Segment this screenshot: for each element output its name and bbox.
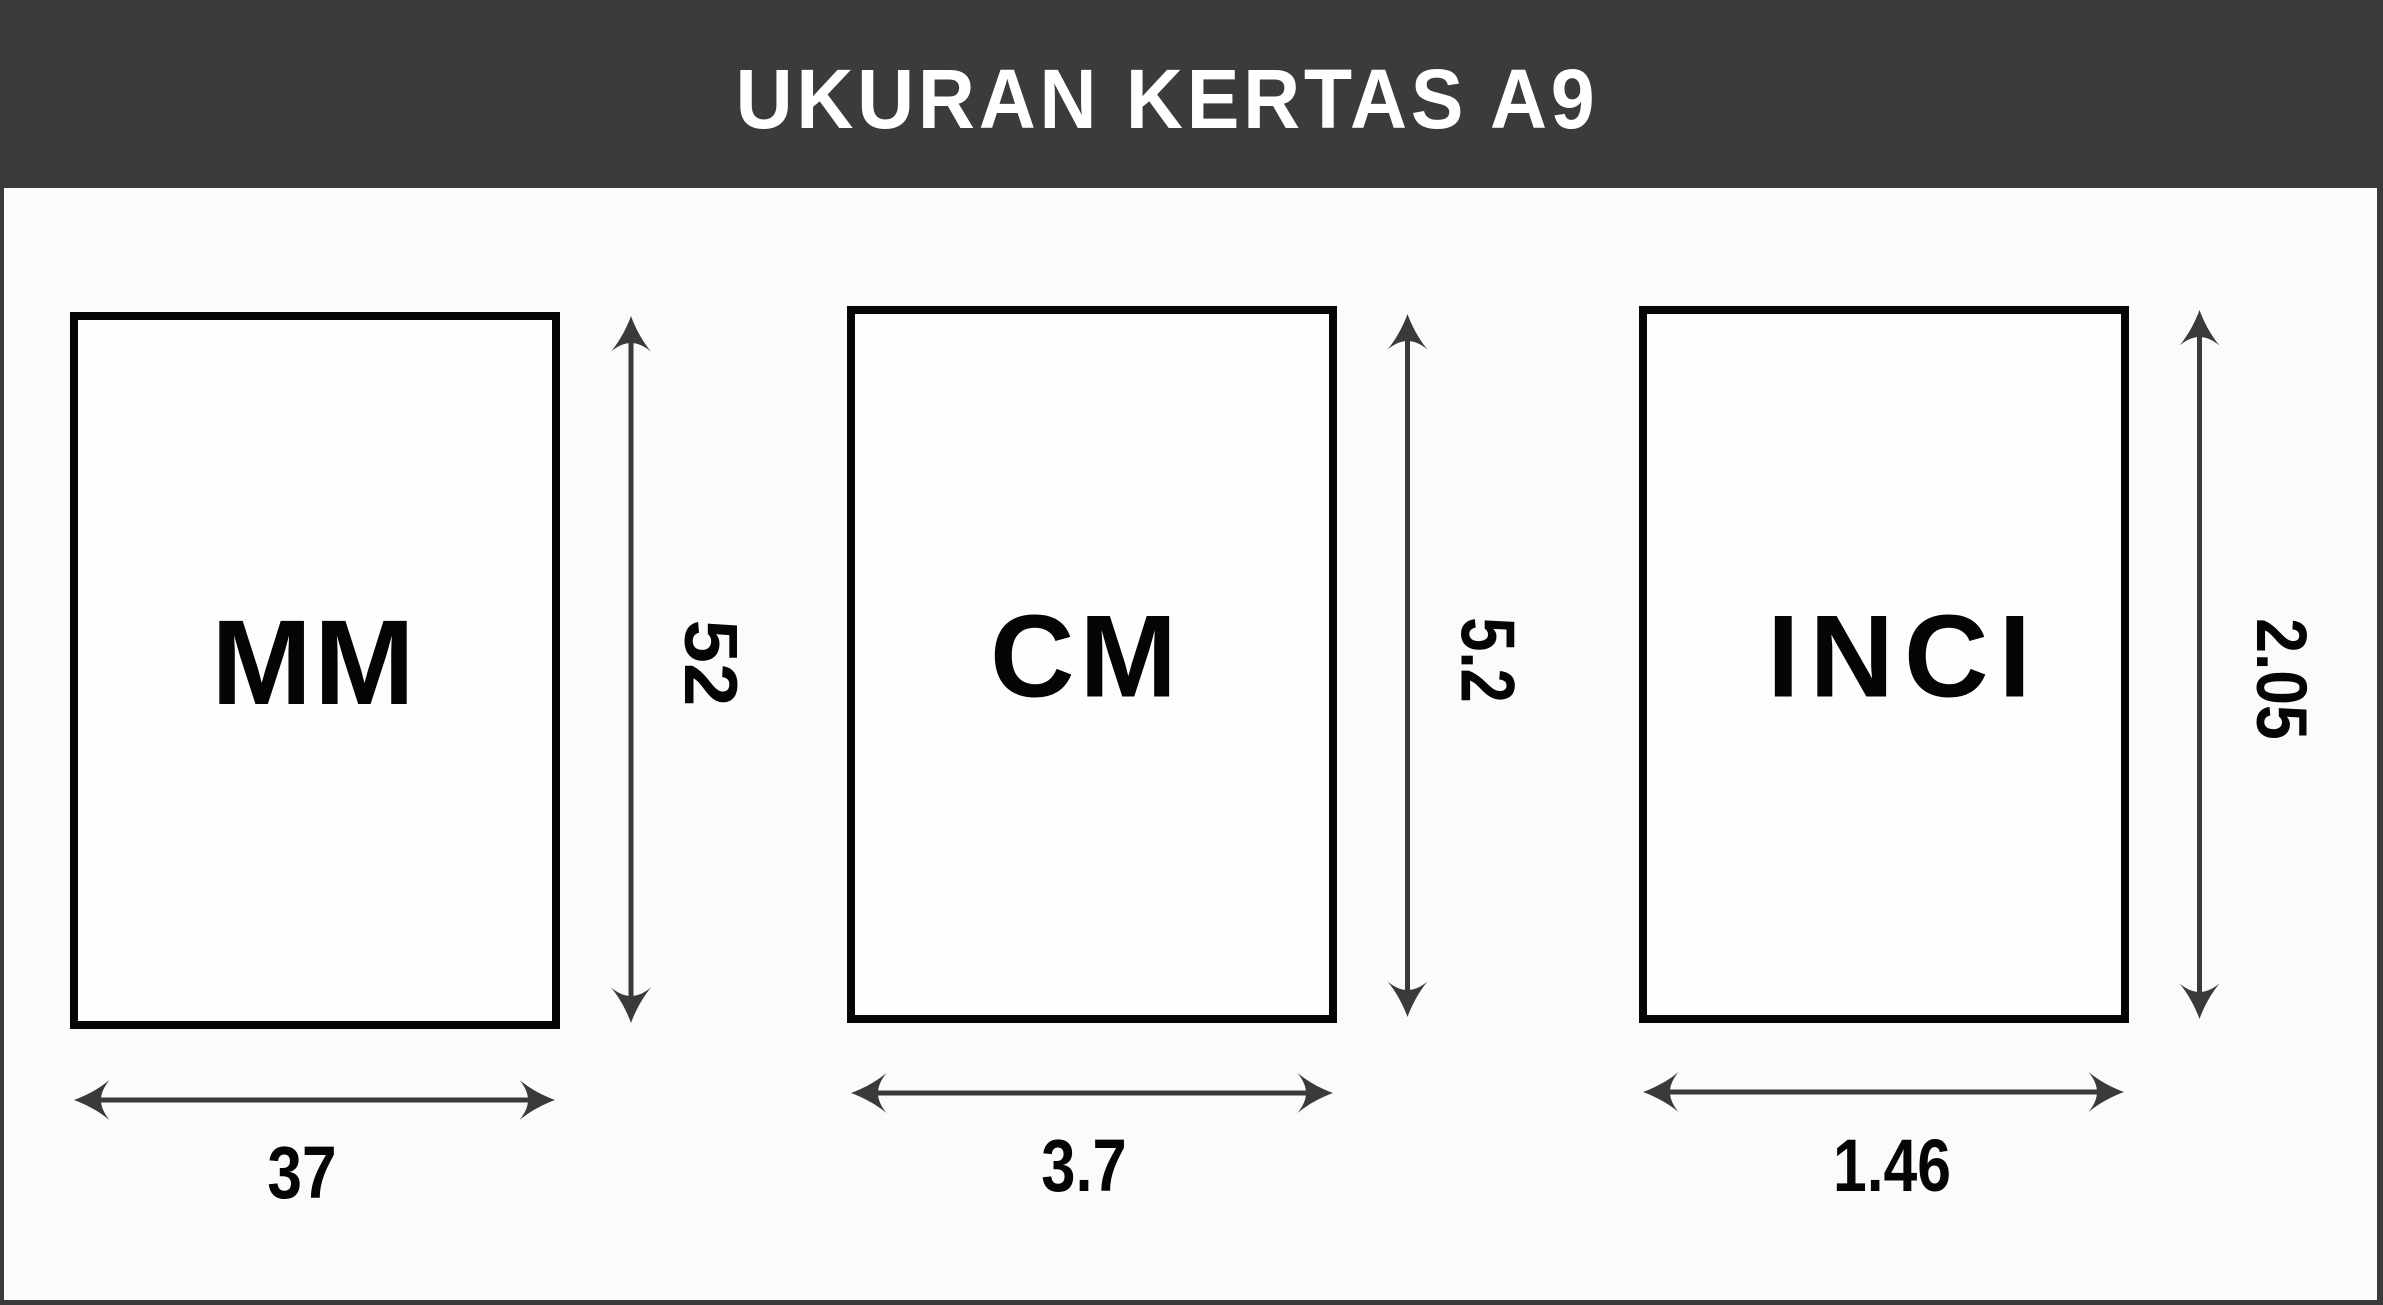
svg-text:UKURAN KERTAS A9: UKURAN KERTAS A9 [736,53,1599,147]
svg-text:2.05: 2.05 [2241,618,2321,740]
svg-text:INCI: INCI [1767,591,2041,722]
svg-text:37: 37 [267,1132,336,1214]
svg-text:5.2: 5.2 [1445,617,1531,703]
svg-text:1.46: 1.46 [1833,1125,1951,1207]
svg-text:3.7: 3.7 [1041,1125,1126,1208]
svg-text:CM: CM [990,591,1182,722]
svg-text:52: 52 [668,620,751,707]
svg-text:MM: MM [211,594,417,730]
